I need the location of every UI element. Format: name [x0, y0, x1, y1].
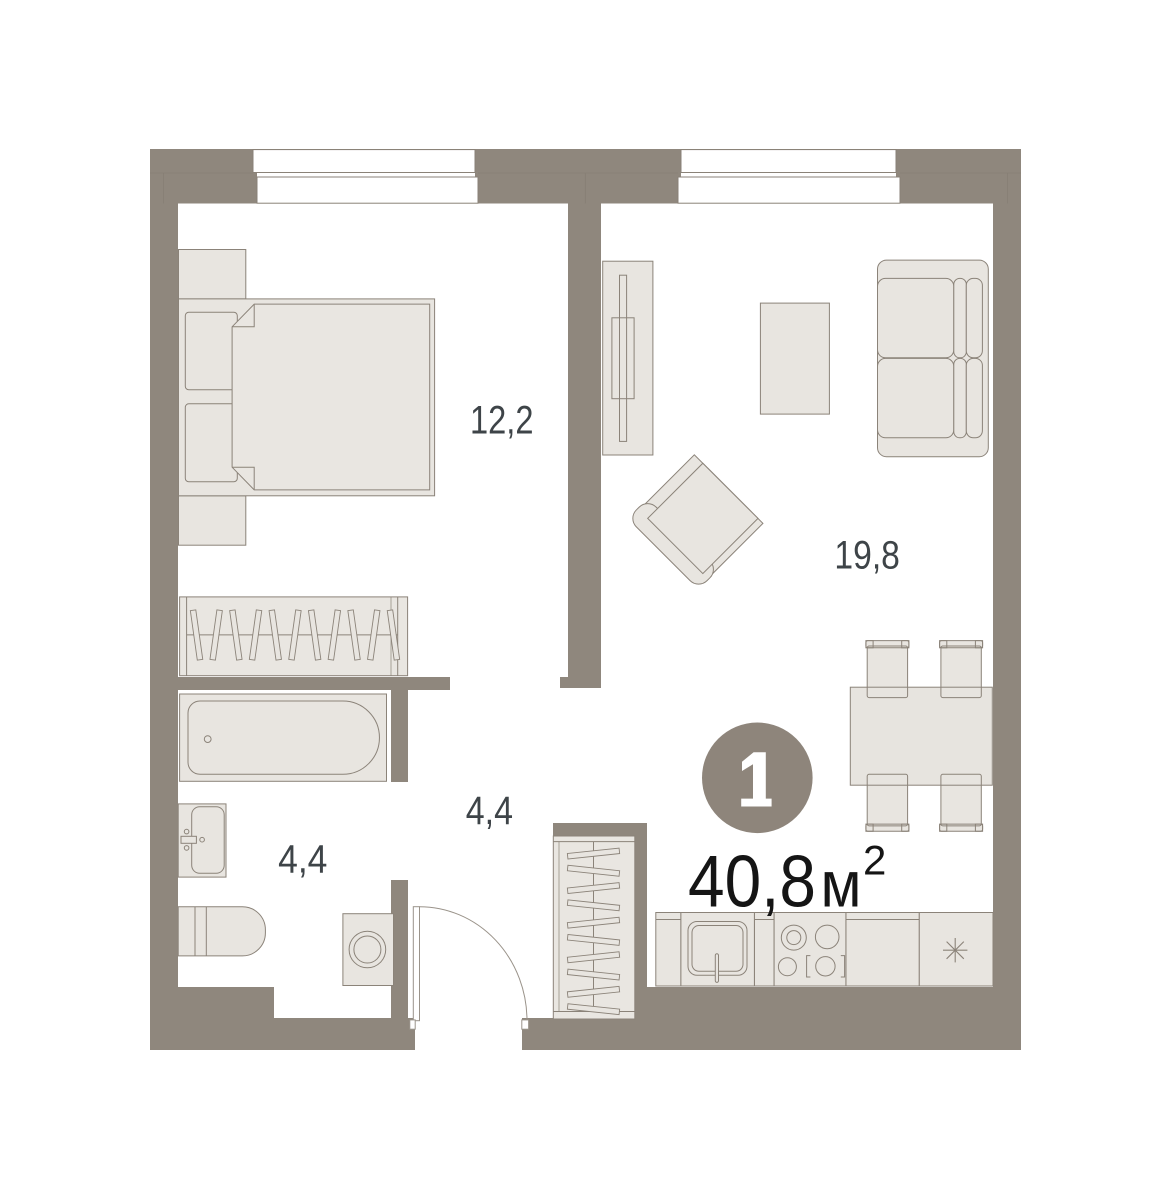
svg-text:40,8: 40,8: [688, 839, 816, 922]
svg-text:4,4: 4,4: [278, 838, 327, 882]
svg-text:12,2: 12,2: [470, 399, 534, 443]
svg-text:м: м: [821, 847, 862, 920]
svg-text:4,4: 4,4: [466, 789, 513, 833]
svg-text:2: 2: [863, 837, 886, 884]
svg-text:19,8: 19,8: [834, 534, 900, 578]
